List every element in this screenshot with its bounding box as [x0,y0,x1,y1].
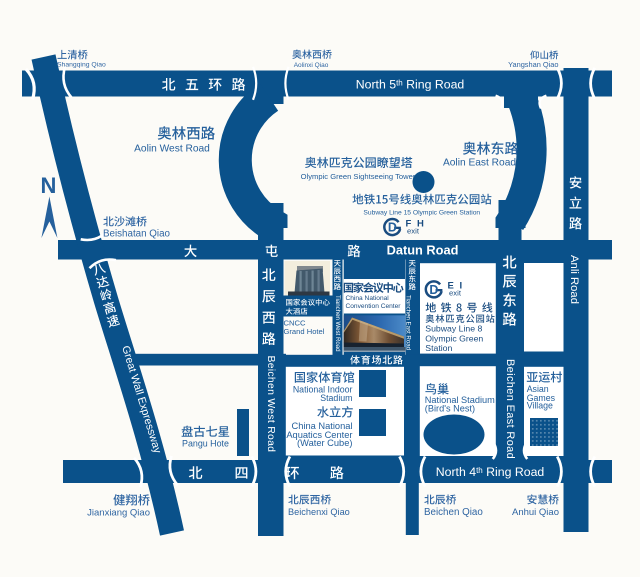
svg-text:China National: China National [346,295,390,302]
svg-text:(Water Cube): (Water Cube) [297,438,352,448]
svg-text:Station: Station [425,343,452,353]
svg-text:Convention Center: Convention Center [346,303,402,310]
svg-text:D: D [429,283,438,297]
svg-text:Aolin West Road: Aolin West Road [134,144,210,155]
svg-text:North 4th Ring Road: North 4th Ring Road [436,465,545,479]
svg-text:Aolinxi Qiao: Aolinxi Qiao [294,62,329,69]
svg-text:Beichen Qiao: Beichen Qiao [424,507,483,518]
svg-text:Olympic Green: Olympic Green [425,333,483,343]
svg-text:Subway Line 15 Olympic Green S: Subway Line 15 Olympic Green Station [363,210,480,217]
svg-text:Beichen East Road: Beichen East Road [504,359,516,459]
svg-text:Beichenxi Qiao: Beichenxi Qiao [288,507,350,517]
svg-text:Anli Road: Anli Road [568,255,580,304]
svg-text:Grand Hotel: Grand Hotel [284,327,325,336]
svg-text:Jianxiang Qiao: Jianxiang Qiao [87,508,150,519]
svg-text:Aolin East Road: Aolin East Road [443,158,516,169]
svg-text:Pangu Hote: Pangu Hote [182,438,229,448]
svg-text:Tianchen East Road: Tianchen East Road [405,295,412,350]
svg-text:N: N [41,173,57,198]
svg-text:Anhui Qiao: Anhui Qiao [512,507,559,518]
svg-text:Yangshan Qiao: Yangshan Qiao [508,60,558,69]
svg-text:Shangqing Qiao: Shangqing Qiao [57,62,106,69]
svg-text:exit: exit [407,227,420,236]
svg-text:D: D [388,221,397,235]
svg-text:Datun Road: Datun Road [387,243,459,258]
svg-text:Stadium: Stadium [320,393,352,403]
svg-text:Olympic Green Sightseeing Towe: Olympic Green Sightseeing Tower [301,172,416,181]
svg-text:(Bird's Nest): (Bird's Nest) [425,404,475,414]
svg-text:Tianchen West Road: Tianchen West Road [334,295,341,352]
svg-text:Subway Line 8: Subway Line 8 [425,323,482,333]
svg-text:Beishatan Qiao: Beishatan Qiao [103,229,171,240]
svg-text:Beichen West Road: Beichen West Road [265,356,276,453]
svg-text:Village: Village [527,401,553,411]
svg-text:North 5th Ring Road: North 5th Ring Road [356,77,465,91]
svg-text:exit: exit [449,289,462,298]
